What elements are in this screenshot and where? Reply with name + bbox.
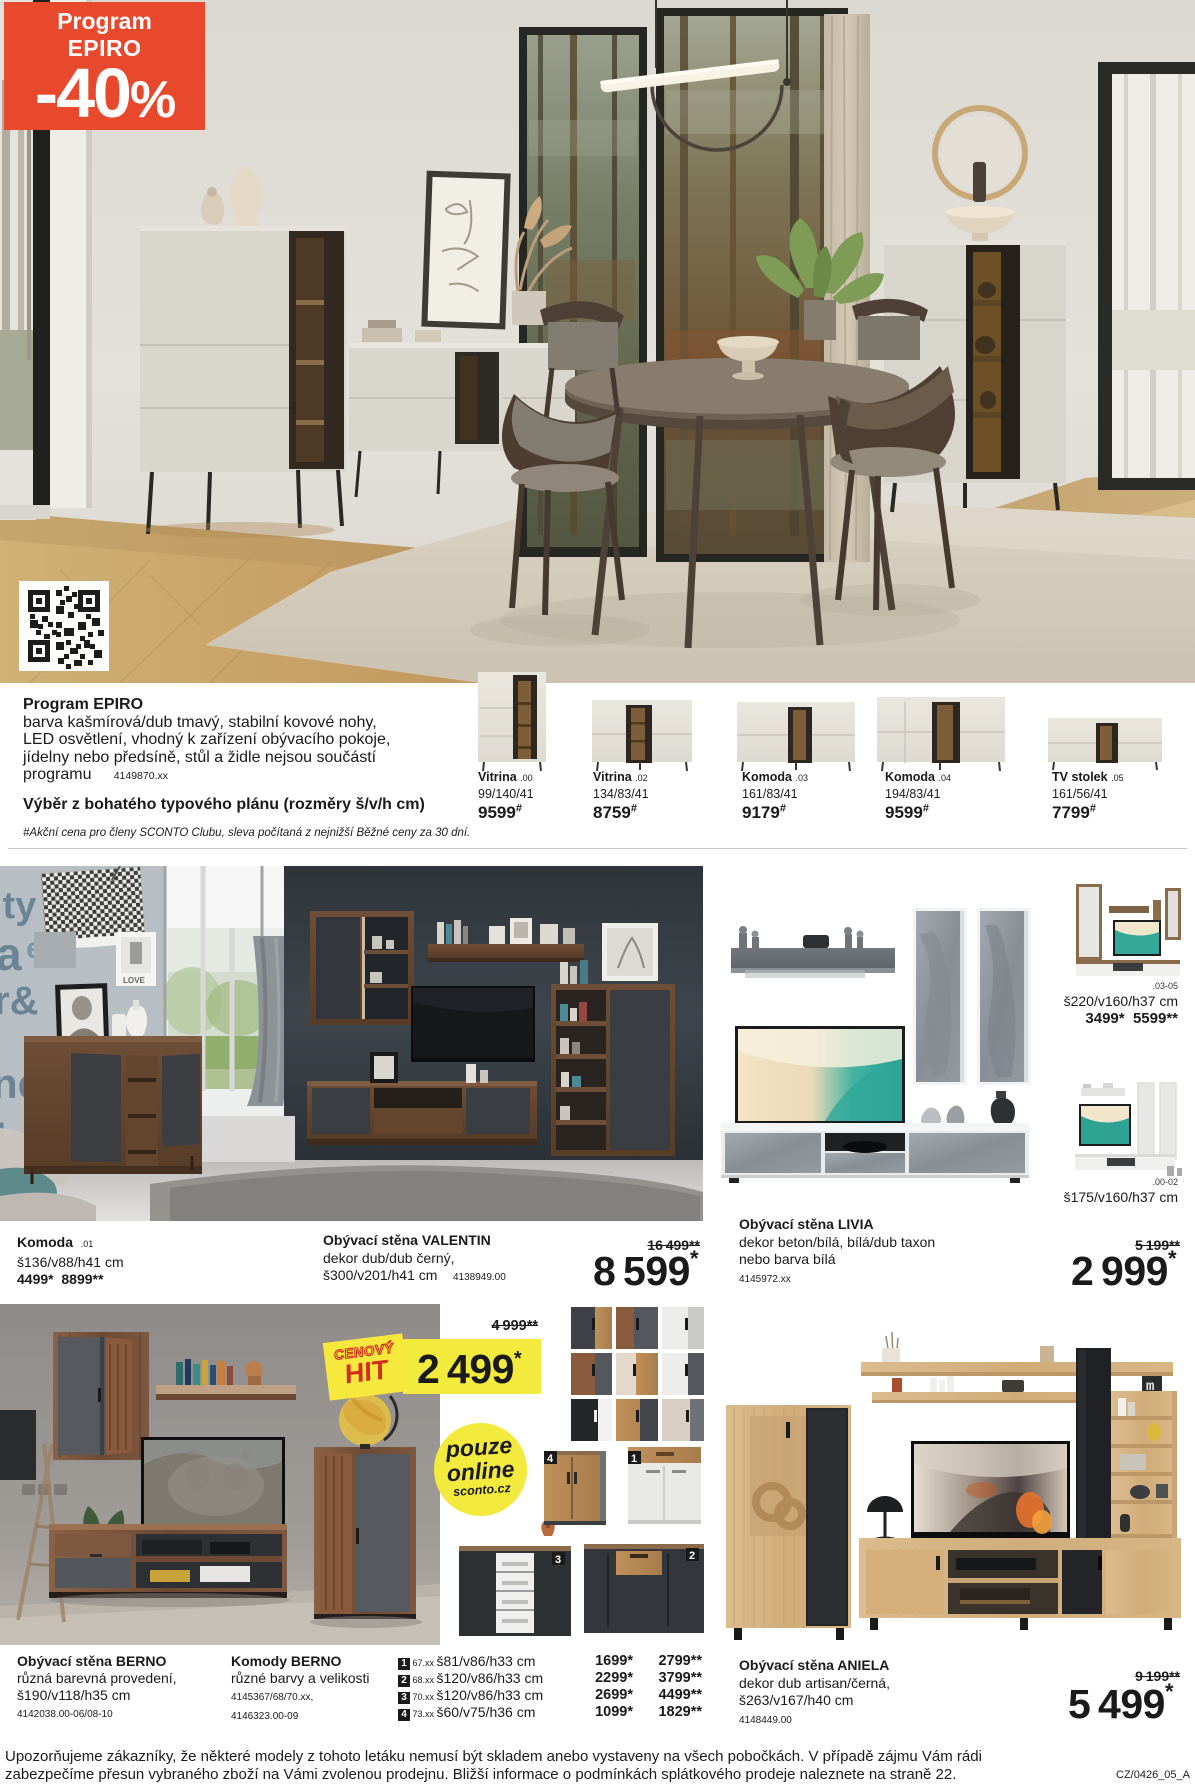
svg-text:ity: ity <box>0 885 36 927</box>
svg-text:4: 4 <box>547 1453 554 1465</box>
svg-text:a: a <box>0 928 22 980</box>
svg-text:1: 1 <box>631 1453 637 1465</box>
svg-text:LOVE: LOVE <box>123 976 145 985</box>
svg-text:2: 2 <box>689 1550 695 1562</box>
svg-text:3: 3 <box>555 1554 561 1566</box>
svg-text:r&: r& <box>0 979 38 1023</box>
